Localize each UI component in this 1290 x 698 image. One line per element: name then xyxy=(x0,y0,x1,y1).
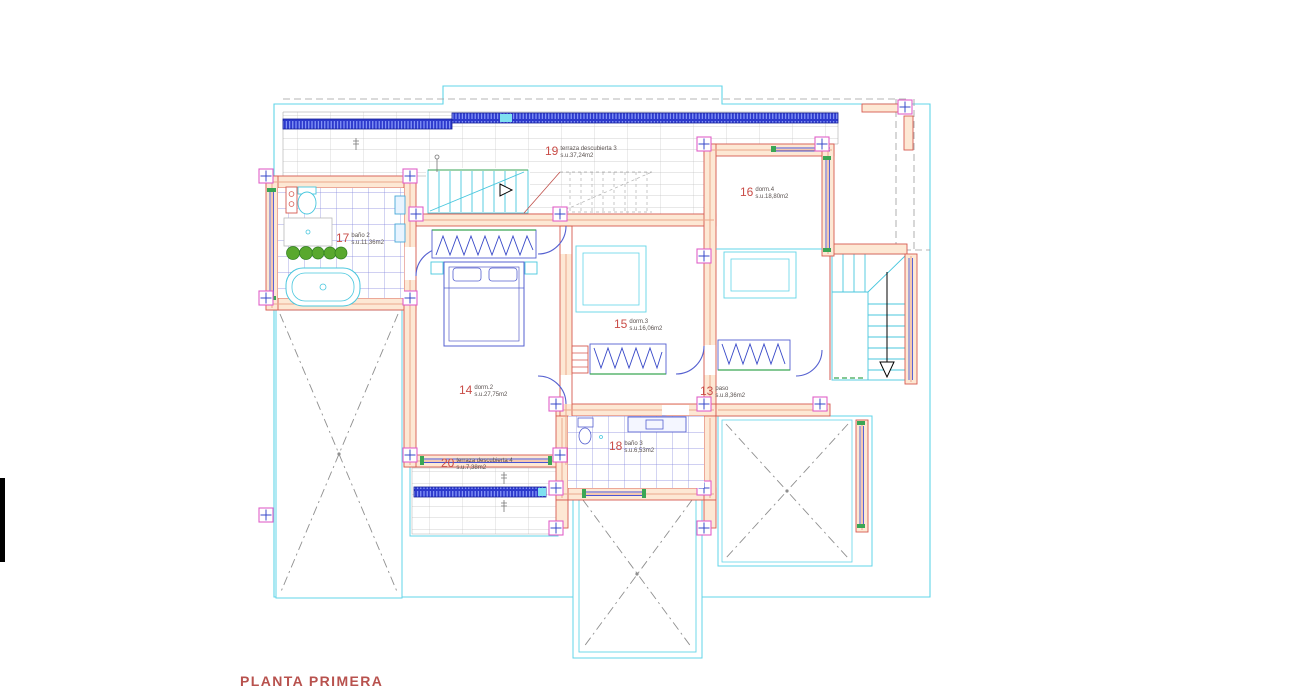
vanity-icon xyxy=(628,417,686,432)
room-number: 15 xyxy=(614,319,627,329)
room-label-terraza-3: 19 terraza descubierta 3s.u.37,24m2 xyxy=(545,146,617,159)
bed-icon xyxy=(576,246,646,312)
wardrobe-icon xyxy=(590,344,666,374)
room-label-dorm-2: 14 dorm.2s.u.27,75m2 xyxy=(459,385,507,398)
page-title: PLANTA PRIMERA xyxy=(240,673,383,689)
room-number: 18 xyxy=(609,441,622,451)
room-area: s.u.7,38m2 xyxy=(456,465,512,472)
room-number: 17 xyxy=(336,233,349,243)
shower-tray xyxy=(284,218,332,246)
room-area: s.u.8,36m2 xyxy=(715,393,745,400)
room-area: s.u.11,36m2 xyxy=(351,240,384,247)
room-area: s.u.18,80m2 xyxy=(755,194,788,201)
bed-icon xyxy=(444,262,524,346)
toilet-icon xyxy=(298,192,316,214)
room-label-dorm-3: 15 dorm.3s.u.16,06m2 xyxy=(614,319,662,332)
room-label-dorm-4: 16 dorm.4s.u.18,80m2 xyxy=(740,187,788,200)
staircase-right xyxy=(830,254,907,380)
bedroom-3-furniture xyxy=(572,246,666,374)
room-number: 16 xyxy=(740,187,753,197)
strip-marker xyxy=(500,114,512,122)
cabinet-icon xyxy=(286,187,297,213)
toilet-icon xyxy=(579,428,591,444)
bathtub-icon xyxy=(286,268,360,306)
bedroom-4-furniture xyxy=(716,249,822,370)
bedroom-2-furniture xyxy=(431,230,537,346)
void-lower-left xyxy=(276,310,402,598)
room-area: s.u.27,75m2 xyxy=(474,392,507,399)
floor-plan-page: 19 terraza descubierta 3s.u.37,24m2 16 d… xyxy=(0,0,1290,698)
floor-plan-drawing xyxy=(0,0,1290,698)
room-number: 14 xyxy=(459,385,472,395)
room-number: 13 xyxy=(700,386,713,396)
room-label-paso: 13 pasos.u.8,36m2 xyxy=(700,386,745,399)
room-label-terraza-4: 20 terraza descubierta 4s.u.7,38m2 xyxy=(441,458,513,471)
room-area: s.u.16,06m2 xyxy=(629,326,662,333)
room-area: s.u.6,53m2 xyxy=(624,448,654,455)
room-number: 19 xyxy=(545,146,558,156)
room-label-bano-2: 17 baño 2s.u.11,36m2 xyxy=(336,233,384,246)
void-bottom-center xyxy=(573,490,702,658)
terrace-4-deck xyxy=(410,466,558,536)
shelf-rack-icon xyxy=(572,346,588,373)
void-lower-right xyxy=(718,416,872,566)
room-number: 20 xyxy=(441,458,454,468)
pergola-strip-left xyxy=(283,119,452,129)
room-label-bano-3: 18 baño 3s.u.6,53m2 xyxy=(609,441,654,454)
bathroom-2-fixtures xyxy=(278,187,405,306)
sink-icon xyxy=(395,196,405,214)
screen-edge-artifact xyxy=(0,478,5,562)
room-area: s.u.37,24m2 xyxy=(560,153,616,160)
plants-icon xyxy=(287,247,348,260)
sink-icon xyxy=(395,224,405,242)
